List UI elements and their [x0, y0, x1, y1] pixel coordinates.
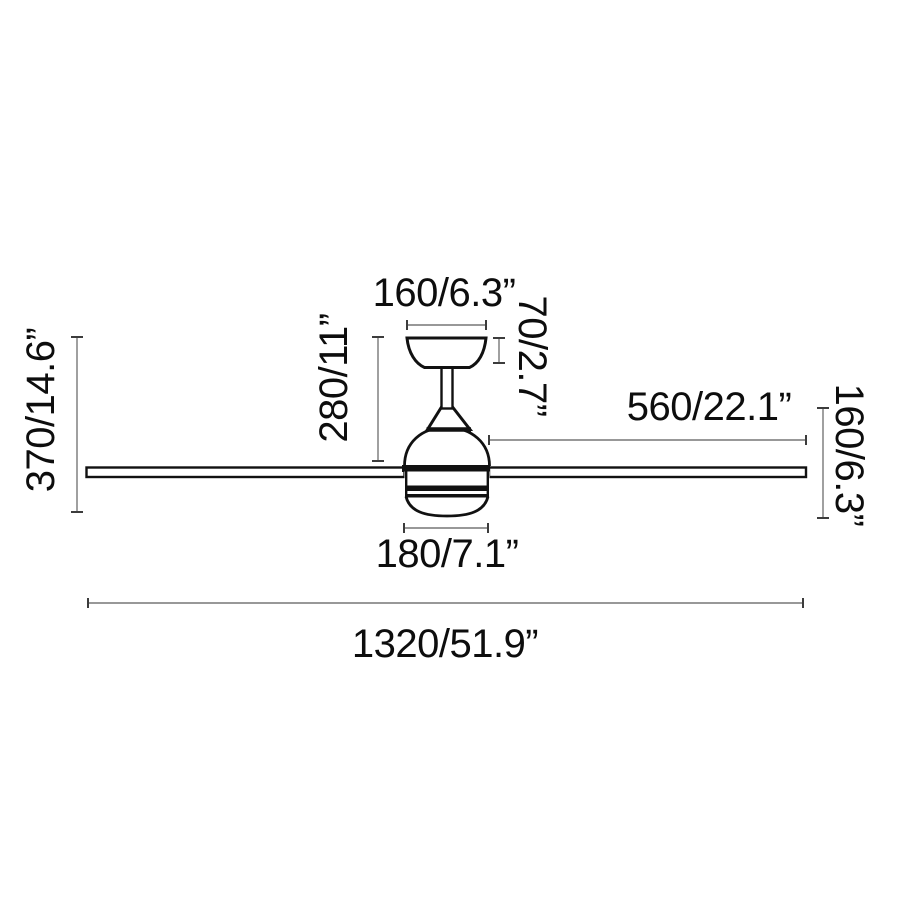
label-canopy-height: 70/2.7” — [510, 295, 554, 416]
fan-dimension-diagram: 160/6.3” 70/2.7” 280/11” 370/14.6” 560/2… — [0, 0, 901, 901]
fan-downrod-flare — [428, 407, 471, 430]
label-total-height: 370/14.6” — [19, 328, 63, 493]
diagram-canvas: 160/6.3” 70/2.7” 280/11” 370/14.6” 560/2… — [0, 0, 901, 901]
label-total-diameter: 1320/51.9” — [352, 622, 538, 666]
fan-blade-right — [489, 468, 806, 478]
fan-light-diffuser — [406, 497, 488, 517]
fan-canopy — [407, 338, 486, 368]
fan-blade-left — [87, 468, 405, 478]
fan-downrod — [442, 367, 453, 409]
label-canopy-width: 160/6.3” — [373, 271, 516, 315]
fan-blade-ring — [402, 465, 490, 472]
fan-motor-dome — [405, 428, 490, 467]
fan-body-trim-line — [405, 494, 489, 498]
fan-body-band — [405, 486, 489, 492]
fan-body — [405, 472, 490, 498]
label-motor-width: 180/7.1” — [376, 532, 519, 576]
label-body-height: 160/6.3” — [827, 384, 871, 527]
label-ceiling-to-blades: 280/11” — [312, 313, 356, 442]
label-blade-length: 560/22.1” — [627, 385, 792, 429]
